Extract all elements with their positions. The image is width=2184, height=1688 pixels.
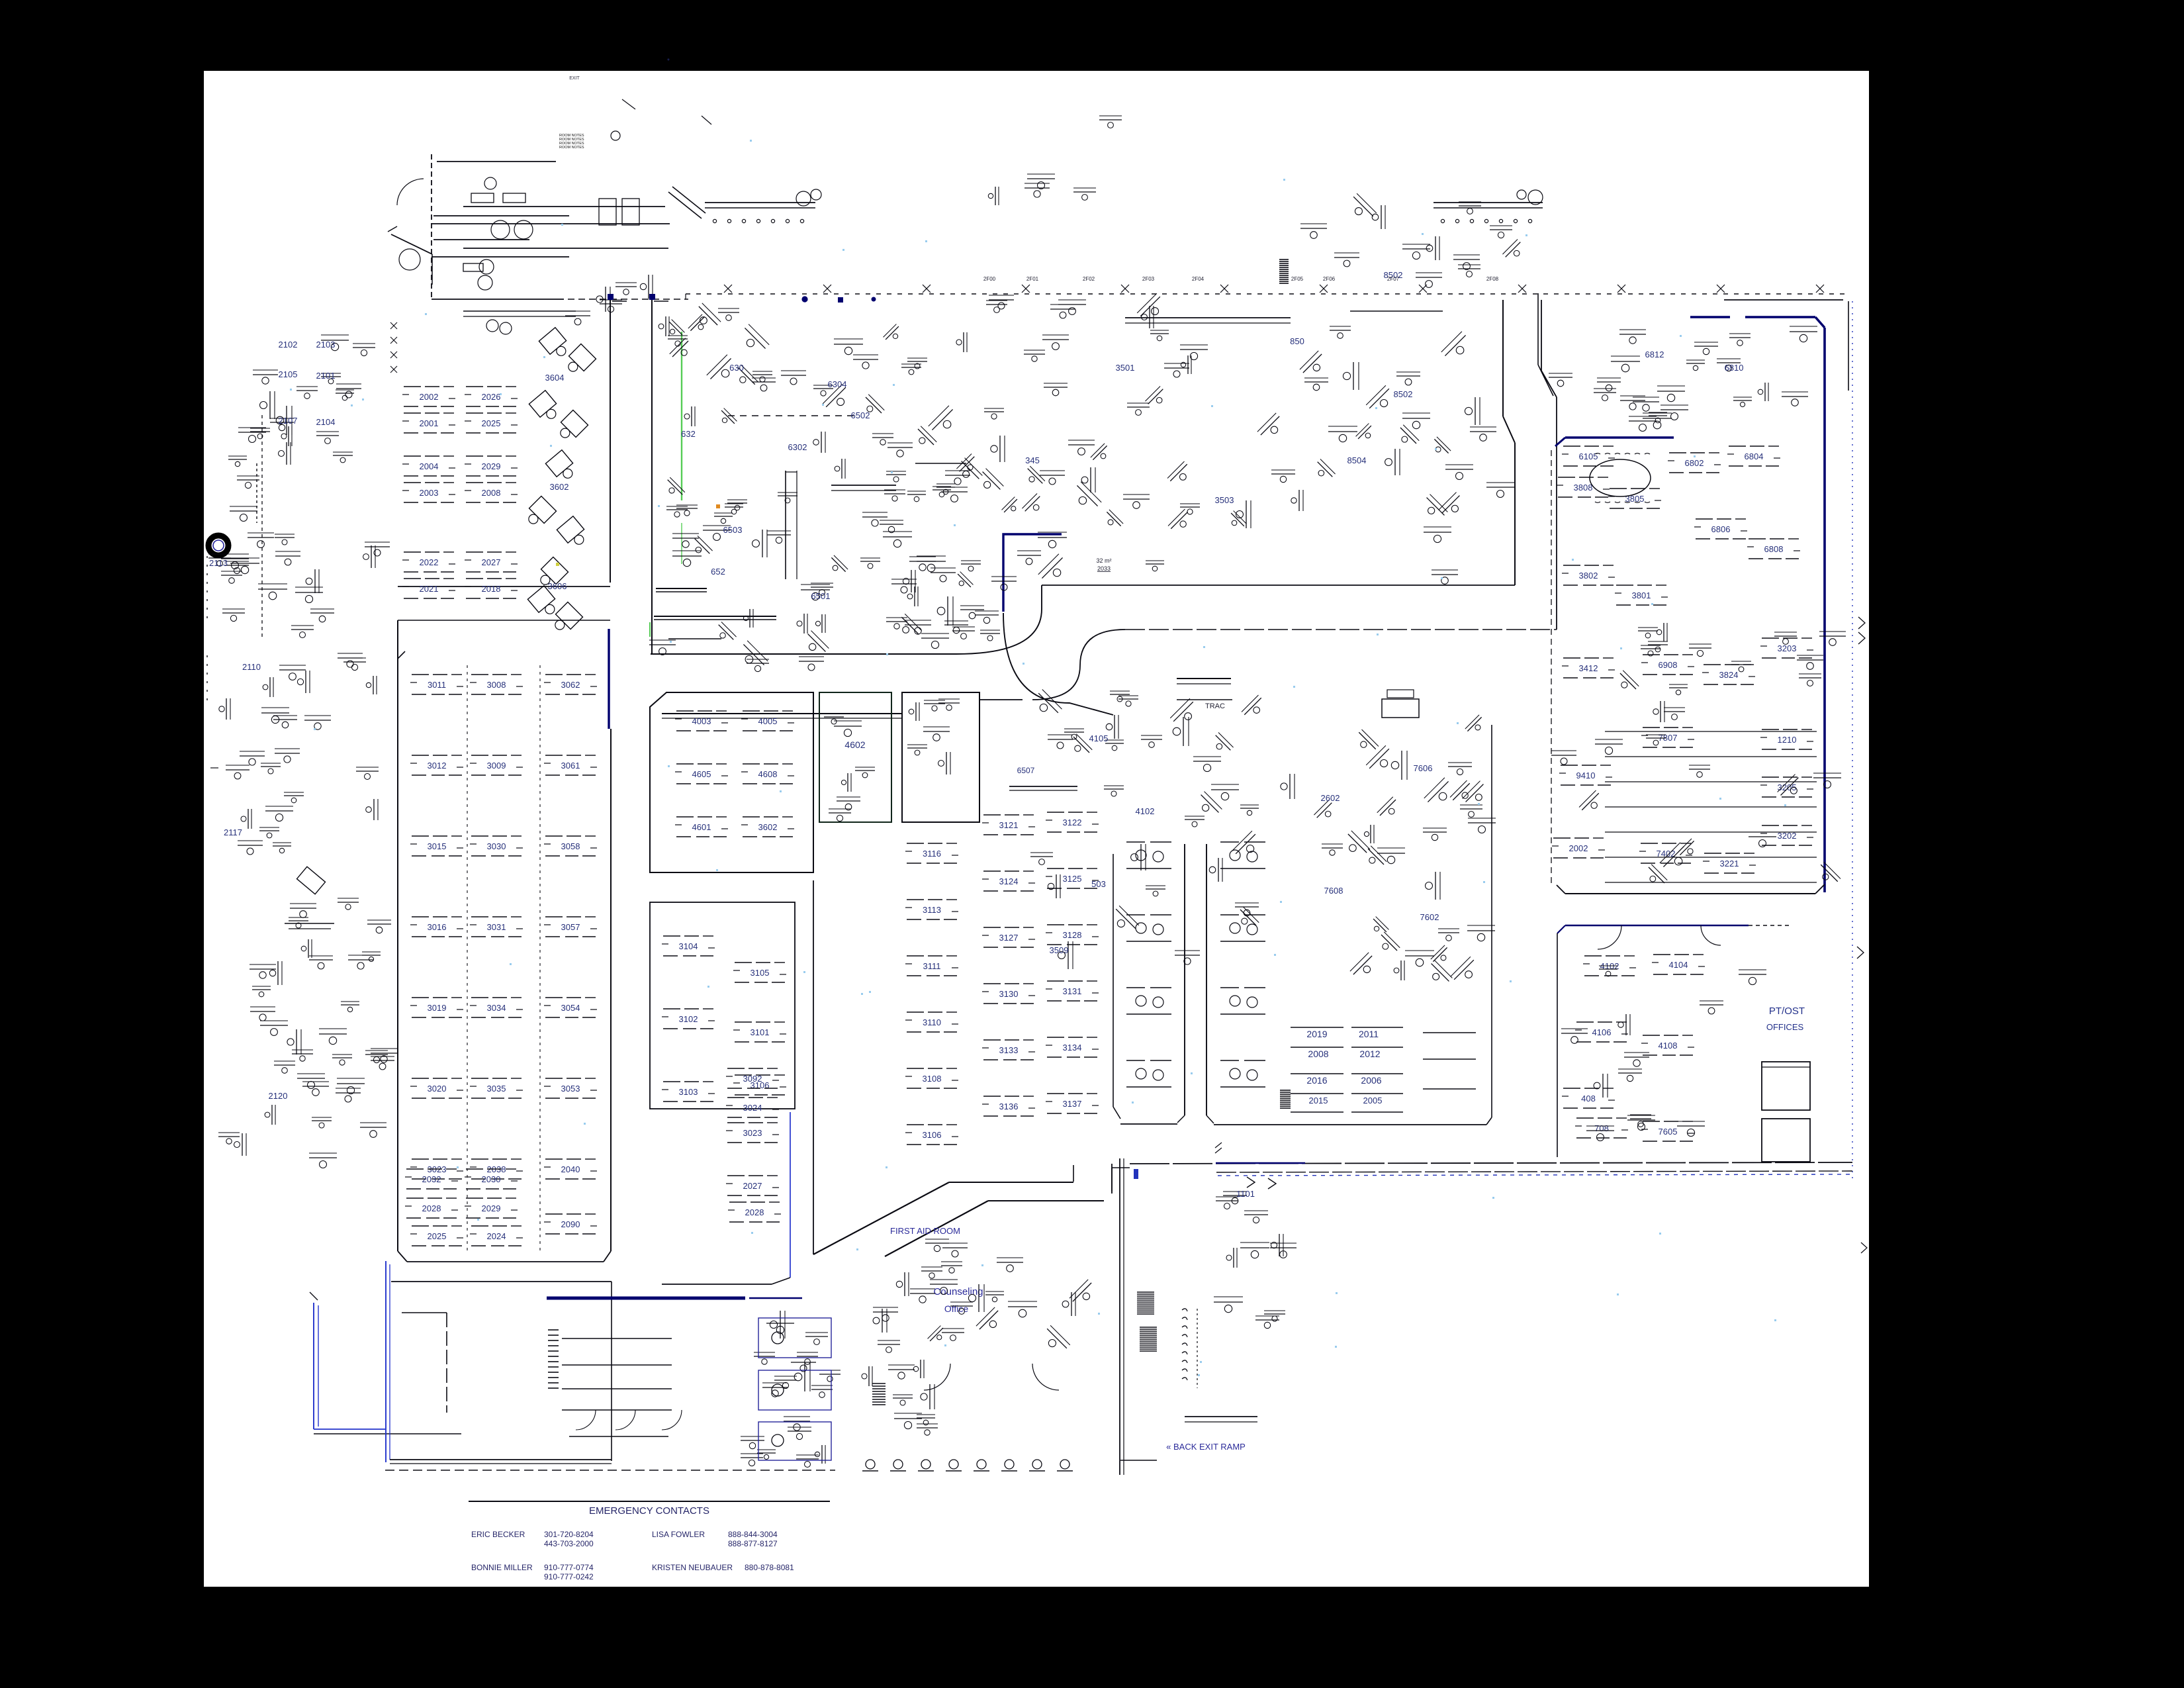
svg-text:9410: 9410 [1576, 771, 1596, 780]
svg-text:3136: 3136 [999, 1102, 1019, 1111]
svg-text:7608: 7608 [1324, 886, 1343, 896]
svg-text:3057: 3057 [561, 922, 580, 932]
svg-text:2002: 2002 [420, 392, 439, 402]
svg-text:6501: 6501 [811, 591, 831, 601]
svg-text:3125: 3125 [1063, 874, 1082, 884]
svg-text:4108: 4108 [1659, 1041, 1678, 1051]
svg-text:2F08: 2F08 [1486, 276, 1499, 282]
svg-text:3509: 3509 [1050, 945, 1069, 955]
svg-text:2101: 2101 [316, 371, 336, 381]
svg-text:2004: 2004 [420, 461, 439, 471]
svg-text:2018: 2018 [482, 584, 501, 594]
svg-text:2090: 2090 [561, 1219, 580, 1229]
svg-text:2117: 2117 [224, 827, 242, 837]
svg-text:2022: 2022 [420, 557, 439, 567]
svg-text:2002: 2002 [1569, 843, 1588, 853]
svg-text:6810: 6810 [1725, 363, 1744, 373]
svg-text:3113: 3113 [923, 905, 941, 915]
svg-text:*: * [667, 58, 670, 65]
svg-text:6304: 6304 [828, 379, 847, 389]
svg-text:6302: 6302 [788, 442, 807, 452]
svg-text:6507: 6507 [1017, 766, 1035, 775]
svg-text:2F01: 2F01 [1026, 276, 1039, 282]
svg-text:3122: 3122 [1063, 818, 1082, 827]
svg-text:630: 630 [729, 363, 744, 373]
svg-text:3602: 3602 [758, 822, 778, 832]
svg-text:3008: 3008 [487, 680, 506, 690]
svg-text:3031: 3031 [487, 922, 506, 932]
svg-text:2033: 2033 [1097, 565, 1111, 572]
svg-text:LISA FOWLER: LISA FOWLER [652, 1530, 705, 1539]
svg-text:3035: 3035 [487, 1084, 506, 1094]
svg-text:PT/OST: PT/OST [1769, 1006, 1805, 1017]
svg-text:3131: 3131 [1063, 986, 1082, 996]
svg-text:6802: 6802 [1685, 458, 1704, 468]
svg-text:3034: 3034 [487, 1003, 506, 1013]
svg-text:4005: 4005 [758, 716, 778, 726]
svg-text:3801: 3801 [1632, 590, 1651, 600]
svg-text:3011: 3011 [428, 680, 446, 690]
svg-text:6812: 6812 [1645, 350, 1664, 359]
svg-text:3103: 3103 [679, 1087, 698, 1097]
svg-text:2005: 2005 [1363, 1096, 1383, 1105]
svg-text:3808: 3808 [1574, 483, 1593, 492]
svg-text:345: 345 [1025, 455, 1040, 465]
svg-text:4601: 4601 [692, 822, 711, 832]
svg-text:2107: 2107 [279, 416, 298, 426]
svg-text:3128: 3128 [1063, 930, 1082, 940]
svg-text:3106: 3106 [923, 1130, 942, 1140]
svg-text:2120: 2120 [269, 1091, 288, 1101]
svg-text:Counseling: Counseling [933, 1286, 983, 1297]
svg-text:3116: 3116 [923, 849, 941, 859]
svg-text:2003: 2003 [420, 488, 439, 498]
svg-text:2019: 2019 [1306, 1029, 1327, 1039]
svg-text:2006: 2006 [1361, 1075, 1381, 1086]
svg-text:3137: 3137 [1063, 1099, 1082, 1109]
svg-text:3133: 3133 [999, 1045, 1019, 1055]
svg-text:3110: 3110 [923, 1017, 941, 1027]
svg-text:2F05: 2F05 [1291, 276, 1304, 282]
svg-text:2008: 2008 [482, 488, 501, 498]
svg-text:3134: 3134 [1063, 1043, 1082, 1053]
svg-text:3104: 3104 [679, 941, 698, 951]
svg-text:3058: 3058 [561, 841, 580, 851]
svg-text:2030: 2030 [482, 1174, 501, 1184]
svg-text:3802: 3802 [1579, 571, 1598, 581]
svg-text:2028: 2028 [745, 1207, 764, 1217]
svg-text:4608: 4608 [758, 769, 778, 779]
svg-text:3127: 3127 [999, 933, 1019, 943]
svg-text:3501: 3501 [1116, 363, 1135, 373]
svg-text:3016: 3016 [428, 922, 447, 932]
svg-text:3023: 3023 [743, 1128, 762, 1138]
svg-text:3092: 3092 [743, 1074, 762, 1084]
svg-text:2025: 2025 [428, 1231, 447, 1241]
svg-text:2025: 2025 [482, 418, 501, 428]
svg-text:3101: 3101 [751, 1027, 770, 1037]
svg-text:910-777-0242: 910-777-0242 [544, 1572, 594, 1581]
svg-text:850: 850 [1290, 336, 1304, 346]
svg-text:ROOM NOTES: ROOM NOTES [559, 146, 584, 150]
svg-text:BONNIE MILLER: BONNIE MILLER [471, 1563, 533, 1572]
svg-text:2F07: 2F07 [1387, 276, 1400, 282]
svg-text:2027: 2027 [482, 557, 501, 567]
svg-text:EMERGENCY CONTACTS: EMERGENCY CONTACTS [589, 1505, 709, 1517]
svg-text:2F03: 2F03 [1142, 276, 1155, 282]
svg-text:FIRST AID ROOM: FIRST AID ROOM [890, 1226, 960, 1236]
svg-text:408: 408 [1581, 1094, 1596, 1103]
svg-text:1101: 1101 [1236, 1189, 1255, 1199]
svg-text:Office: Office [944, 1303, 969, 1314]
svg-text:3412: 3412 [1579, 663, 1598, 673]
svg-text:3108: 3108 [923, 1074, 942, 1084]
svg-text:2015: 2015 [1309, 1096, 1328, 1105]
svg-text:3061: 3061 [561, 761, 580, 771]
svg-text:2110: 2110 [242, 662, 261, 672]
svg-text:3203: 3203 [1778, 643, 1797, 653]
svg-text:4003: 4003 [692, 716, 711, 726]
svg-text:2103: 2103 [316, 340, 336, 350]
svg-text:3030: 3030 [487, 841, 506, 851]
svg-text:32 m²: 32 m² [1096, 557, 1111, 564]
svg-text:7605: 7605 [1659, 1127, 1678, 1137]
svg-text:443-703-2000: 443-703-2000 [544, 1539, 594, 1548]
svg-text:2026: 2026 [482, 392, 501, 402]
svg-text:1210: 1210 [1778, 735, 1797, 745]
svg-text:2113: 2113 [209, 558, 228, 568]
svg-text:6503: 6503 [723, 525, 743, 535]
svg-text:8504: 8504 [1347, 455, 1367, 465]
svg-text:3054: 3054 [561, 1003, 580, 1013]
svg-text:2040: 2040 [561, 1164, 580, 1174]
svg-text:3221: 3221 [1720, 859, 1739, 868]
svg-text:2602: 2602 [1321, 793, 1340, 803]
svg-text:TRAC: TRAC [1205, 702, 1225, 710]
svg-text:652: 652 [711, 567, 725, 577]
svg-text:2032: 2032 [422, 1174, 441, 1184]
svg-text:2012: 2012 [1359, 1049, 1380, 1059]
svg-text:503: 503 [1091, 879, 1106, 889]
svg-text:4602: 4602 [844, 739, 865, 750]
svg-text:3606: 3606 [548, 581, 567, 591]
svg-text:4102: 4102 [1136, 806, 1155, 816]
svg-text:708: 708 [1594, 1123, 1609, 1133]
svg-text:6808: 6808 [1764, 544, 1784, 554]
svg-text:2024: 2024 [487, 1231, 506, 1241]
svg-text:2F02: 2F02 [1083, 276, 1095, 282]
svg-text:3012: 3012 [428, 761, 447, 771]
svg-text:« BACK EXIT RAMP: « BACK EXIT RAMP [1166, 1442, 1246, 1452]
svg-text:KRISTEN NEUBAUER: KRISTEN NEUBAUER [652, 1563, 733, 1572]
svg-text:2011: 2011 [1359, 1029, 1379, 1039]
svg-text:6105: 6105 [1579, 451, 1598, 461]
svg-text:3130: 3130 [999, 989, 1019, 999]
svg-text:3015: 3015 [428, 841, 447, 851]
svg-text:3124: 3124 [999, 876, 1019, 886]
svg-text:7606: 7606 [1414, 763, 1433, 773]
svg-text:6908: 6908 [1659, 660, 1678, 670]
svg-text:2F04: 2F04 [1192, 276, 1205, 282]
svg-text:3053: 3053 [561, 1084, 580, 1094]
svg-text:2008: 2008 [1308, 1049, 1328, 1059]
svg-text:4605: 4605 [692, 769, 711, 779]
svg-text:3111: 3111 [923, 961, 941, 971]
svg-text:4106: 4106 [1592, 1027, 1612, 1037]
svg-text:3062: 3062 [561, 680, 580, 690]
svg-text:888-877-8127: 888-877-8127 [728, 1539, 778, 1548]
svg-text:4104: 4104 [1669, 960, 1688, 970]
svg-text:3604: 3604 [545, 373, 565, 383]
svg-text:2016: 2016 [1306, 1075, 1327, 1086]
svg-text:2105: 2105 [279, 369, 298, 379]
svg-text:3020: 3020 [428, 1084, 447, 1094]
svg-text:888-844-3004: 888-844-3004 [728, 1530, 778, 1539]
svg-text:2102: 2102 [279, 340, 298, 350]
svg-text:301-720-8204: 301-720-8204 [544, 1530, 594, 1539]
svg-text:910-777-0774: 910-777-0774 [544, 1563, 594, 1572]
svg-text:2F00: 2F00 [983, 276, 996, 282]
svg-text:3105: 3105 [751, 968, 770, 978]
svg-text:2F06: 2F06 [1323, 276, 1336, 282]
svg-text:2021: 2021 [420, 584, 439, 594]
svg-text:632: 632 [681, 429, 696, 439]
svg-text:3602: 3602 [550, 482, 569, 492]
svg-text:3121: 3121 [999, 820, 1019, 830]
svg-text:6806: 6806 [1711, 524, 1731, 534]
svg-text:ERIC BECKER: ERIC BECKER [471, 1530, 525, 1539]
svg-text:3019: 3019 [428, 1003, 447, 1013]
svg-text:3503: 3503 [1215, 495, 1234, 505]
svg-text:3009: 3009 [487, 761, 506, 771]
svg-text:2029: 2029 [482, 461, 501, 471]
svg-text:6804: 6804 [1745, 451, 1764, 461]
svg-text:7602: 7602 [1420, 912, 1439, 922]
svg-text:2029: 2029 [482, 1203, 501, 1213]
svg-text:2027: 2027 [743, 1181, 762, 1191]
svg-text:4105: 4105 [1089, 733, 1109, 743]
svg-text:3102: 3102 [679, 1014, 698, 1024]
svg-text:EXIT: EXIT [569, 76, 580, 81]
svg-text:6502: 6502 [851, 410, 870, 420]
svg-text:OFFICES: OFFICES [1766, 1022, 1804, 1032]
svg-text:2001: 2001 [420, 418, 439, 428]
svg-text:8502: 8502 [1394, 389, 1413, 399]
svg-text:880-878-8081: 880-878-8081 [745, 1563, 794, 1572]
svg-text:2104: 2104 [316, 417, 336, 427]
svg-text:3824: 3824 [1719, 670, 1739, 680]
svg-text:3024: 3024 [743, 1103, 762, 1113]
svg-text:2028: 2028 [422, 1203, 441, 1213]
